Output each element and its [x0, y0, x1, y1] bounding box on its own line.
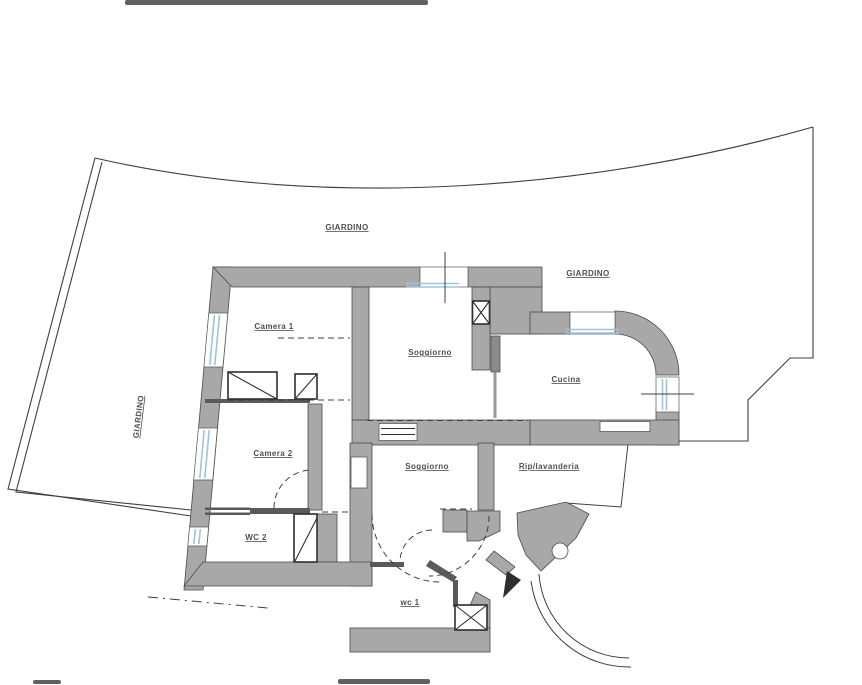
entry-pier-1	[467, 511, 500, 541]
label-garden-left: GIARDINO	[131, 395, 145, 439]
property-line	[148, 597, 268, 608]
wall-top-left	[213, 267, 420, 287]
entry-pier-notch	[552, 543, 568, 559]
wall-wc2-bottom	[184, 562, 372, 586]
label-camera2: Camera 2	[253, 449, 292, 458]
wall-central-upper	[352, 287, 369, 420]
label-wc1: wc 1	[400, 598, 420, 607]
garden-boundary	[8, 127, 813, 608]
steps-arc-outer	[531, 581, 631, 667]
wall-top-right	[468, 267, 542, 287]
wall-wc1-top	[370, 562, 404, 567]
shower-wc2	[294, 514, 317, 562]
steps-arc-inner	[539, 574, 629, 658]
wall-wc2-divider	[250, 508, 310, 514]
wall-soggiorno-right	[472, 287, 490, 370]
wall-wc2-right	[317, 514, 337, 562]
wall-camera2-right	[308, 404, 322, 510]
pass-through	[379, 424, 417, 441]
wall-wc1-right	[453, 580, 458, 607]
soggiorno-lower-niche	[351, 457, 367, 488]
label-cucina: Cucina	[551, 375, 580, 384]
wall-kitchen-curved	[615, 311, 679, 375]
wc2-pass-bar-1	[205, 508, 250, 511]
kitchen-niche	[600, 422, 650, 432]
door-arc-camera2	[274, 470, 312, 508]
sliding-door-leaf	[494, 372, 497, 418]
entry-pier-3	[517, 502, 589, 571]
garden-fence-left-outer	[8, 158, 191, 516]
wall-entry-left-block	[443, 510, 467, 532]
garden-boundary-lower-right	[566, 444, 628, 507]
door-arc-wc1	[400, 530, 432, 562]
wall-wc1-bottom	[350, 628, 490, 652]
garden-fence-left-inner	[16, 162, 191, 510]
door-arc-soggiorno-lower	[372, 514, 440, 582]
entry-pier-2	[486, 551, 515, 575]
label-rip-lavanderia: Rip/lavanderia	[519, 462, 579, 471]
wall-kitchen-top	[530, 312, 570, 334]
wc2-pass-bar-2	[205, 513, 250, 516]
label-camera1: Camera 1	[254, 322, 293, 331]
label-garden-top: GIARDINO	[325, 223, 368, 232]
garden-fence-top-curve	[95, 127, 813, 188]
label-garden-right: GIARDINO	[566, 269, 609, 278]
floor-plan-svg: GIARDINO GIARDINO GIARDINO Camera 1 Sogg…	[0, 0, 862, 685]
window-kitchen-top-gap	[570, 312, 615, 334]
wall-soggiorno-rip-divider	[478, 443, 494, 510]
sliding-door-pocket	[491, 336, 500, 372]
garden-fence-right	[679, 127, 813, 441]
label-soggiorno-lower: Soggiorno	[405, 462, 449, 471]
label-soggiorno-upper: Soggiorno	[408, 348, 452, 357]
floor-plan-page: GIARDINO GIARDINO GIARDINO Camera 1 Sogg…	[0, 0, 862, 685]
label-wc2: WC 2	[245, 533, 267, 542]
entrance-features	[503, 571, 631, 667]
